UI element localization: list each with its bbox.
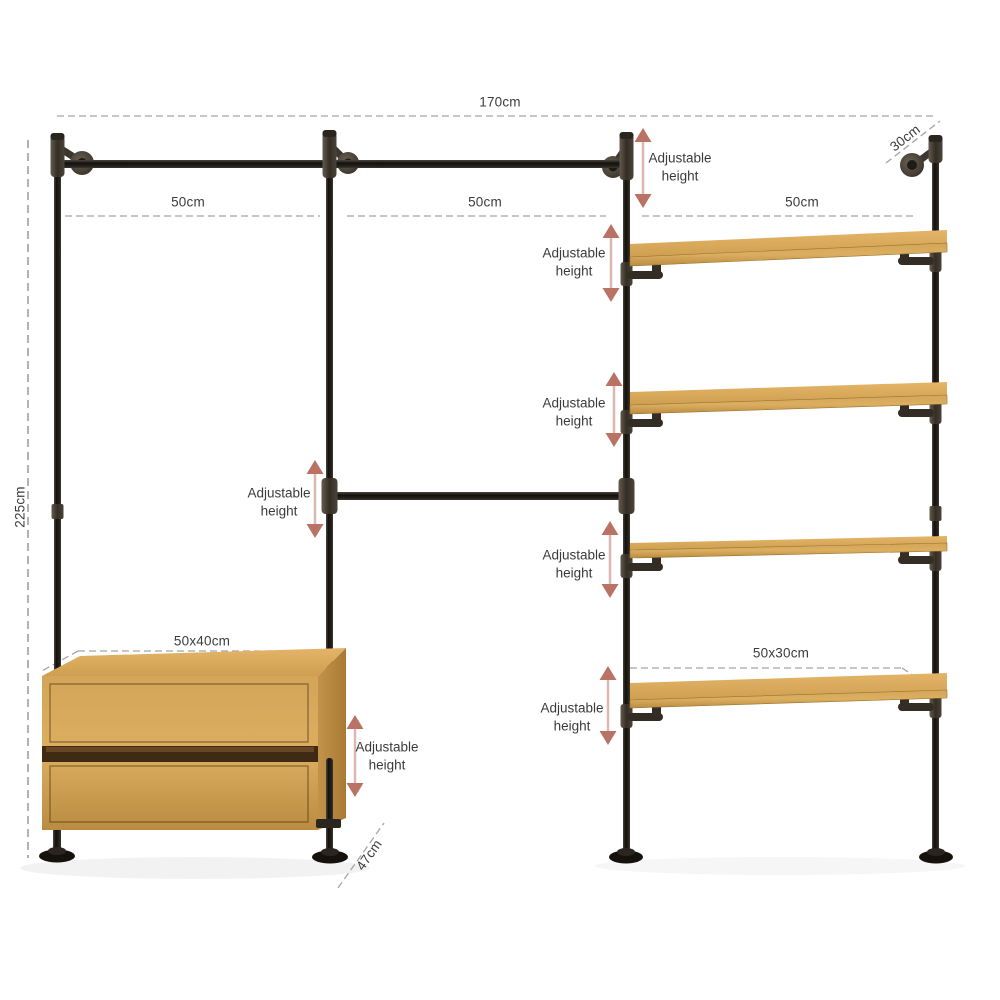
product-dimension-diagram: 170cm 225cm 50cm 50cm 50cm 30cm 50x40cm …	[0, 0, 1000, 1000]
total-height-label: 225cm	[13, 486, 28, 528]
dresser	[42, 648, 346, 830]
adjustable-height-label: Adjustable height	[648, 149, 711, 184]
dresser-size-label: 50x40cm	[174, 634, 230, 649]
shelf-4	[621, 673, 948, 728]
pipe-fittings	[51, 130, 943, 521]
bottom-shelf-size-label: 50x30cm	[753, 646, 809, 661]
adjustable-height-label: Adjustable height	[542, 244, 605, 279]
shelf-1	[621, 230, 948, 286]
foot-middle	[312, 848, 348, 864]
foot-left	[39, 847, 75, 863]
adjustable-height-label: Adjustable height	[542, 546, 605, 581]
clothing-rails	[57, 160, 632, 500]
adjustable-height-label: Adjustable height	[355, 738, 418, 773]
foot-center-right	[609, 848, 643, 864]
total-width-label: 170cm	[479, 95, 521, 110]
top-rail	[57, 160, 632, 168]
adjustable-height-label: Adjustable height	[247, 484, 310, 519]
adjustable-arrows	[307, 128, 652, 797]
section-3-width-label: 50cm	[785, 195, 819, 210]
dresser-bracket	[316, 819, 341, 828]
shelf-2	[621, 382, 948, 434]
section-1-width-label: 50cm	[171, 195, 205, 210]
section-2-width-label: 50cm	[468, 195, 502, 210]
adjustable-height-label: Adjustable height	[540, 699, 603, 734]
shelf-3	[621, 536, 948, 578]
foot-right	[919, 848, 953, 864]
dresser-top-face	[42, 648, 346, 676]
adjustable-height-label: Adjustable height	[542, 394, 605, 429]
middle-rail	[329, 492, 628, 500]
adjustable-height-arrow-icon	[606, 372, 623, 447]
floor-shadows	[20, 857, 965, 879]
structure-illustration	[0, 0, 1000, 1000]
